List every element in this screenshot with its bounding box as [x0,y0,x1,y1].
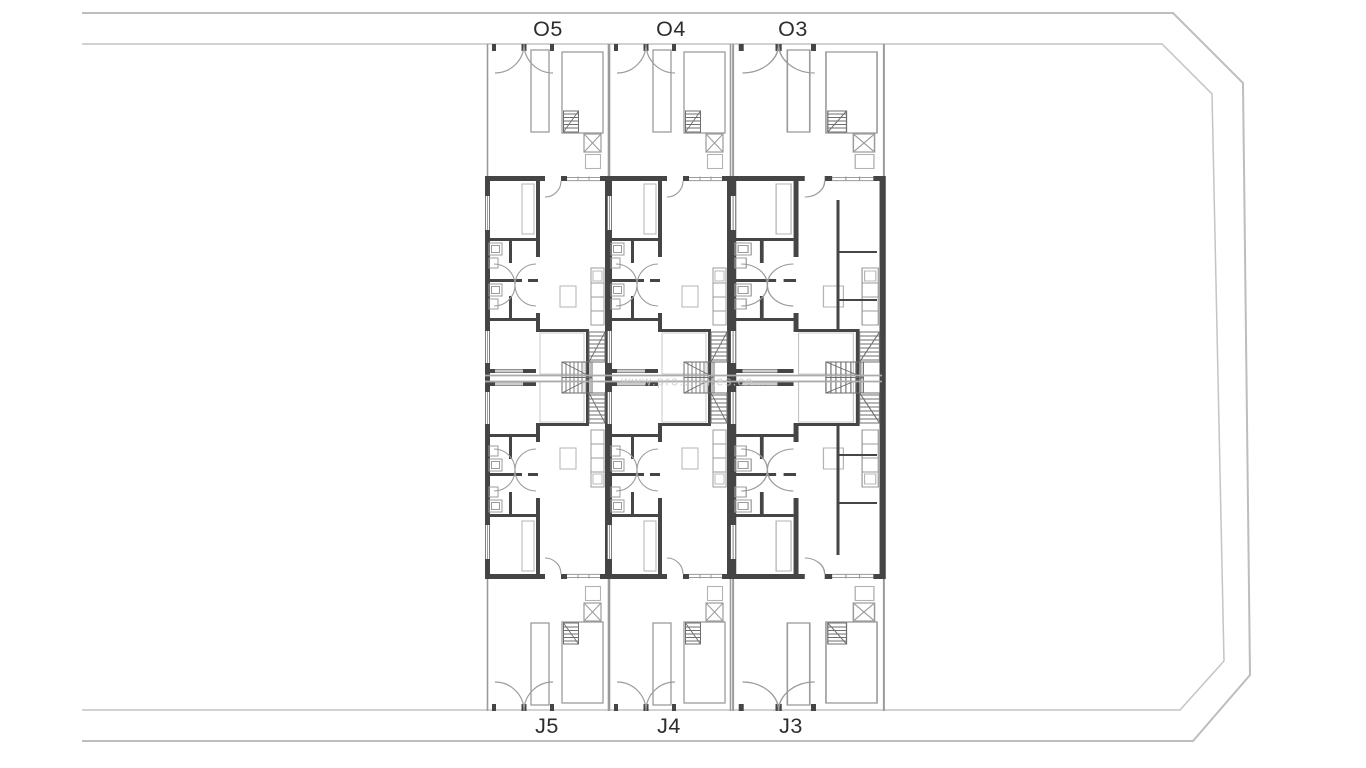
unit-label-o3: O3 [778,17,808,41]
unit-label-o5: O5 [533,17,563,41]
floor-plan-page: www.pro....sites.co... O5 O4 O3 J5 J4 J3 [0,0,1366,768]
watermark-text: www.pro....sites.co... [620,375,769,389]
unit-label-j5: J5 [535,714,559,738]
floor-plan-canvas: www.pro....sites.co... O5 O4 O3 J5 J4 J3 [0,0,1366,768]
unit-label-j4: J4 [657,714,681,738]
unit-label-o4: O4 [656,17,686,41]
unit-label-j3: J3 [779,714,803,738]
